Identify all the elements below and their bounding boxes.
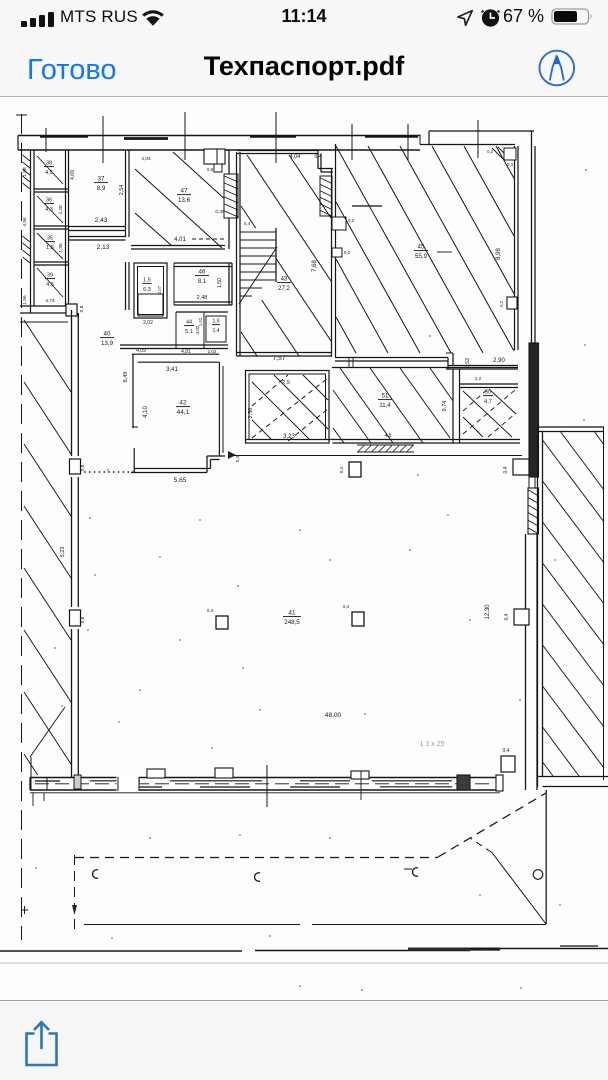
svg-text:4,74: 4,74 [45, 298, 55, 304]
svg-text:1,9: 1,9 [213, 319, 220, 325]
svg-text:4,3: 4,3 [45, 207, 53, 213]
svg-text:12,30: 12,30 [485, 604, 491, 620]
svg-text:37: 37 [98, 176, 105, 183]
svg-text:44: 44 [186, 320, 192, 326]
svg-text:27,2: 27,2 [278, 286, 290, 292]
svg-text:8,9: 8,9 [97, 185, 106, 192]
svg-text:0,2: 0,2 [487, 149, 493, 154]
svg-text:1,50: 1,50 [217, 278, 223, 288]
svg-text:5,23: 5,23 [60, 547, 66, 558]
svg-text:1,02: 1,02 [208, 349, 217, 354]
svg-text:3,41: 3,41 [166, 367, 178, 373]
svg-text:39: 39 [47, 273, 53, 279]
svg-text:0,6: 0,6 [207, 167, 214, 172]
svg-text:1,36: 1,36 [58, 243, 64, 253]
svg-text:8,98: 8,98 [496, 248, 502, 260]
svg-text:38: 38 [46, 161, 52, 167]
svg-text:0,4: 0,4 [503, 466, 509, 473]
svg-text:4,09: 4,09 [136, 348, 146, 354]
svg-text:0,8: 0,8 [80, 616, 86, 623]
svg-text:7,57: 7,57 [273, 355, 286, 362]
svg-text:1,56: 1,56 [22, 295, 28, 305]
svg-text:4,28: 4,28 [58, 205, 64, 215]
svg-text:8,1: 8,1 [198, 279, 207, 285]
svg-text:0,4: 0,4 [343, 604, 350, 609]
svg-text:2,13: 2,13 [97, 244, 110, 251]
svg-text:0,53: 0,53 [465, 358, 471, 368]
svg-text:55,9: 55,9 [415, 253, 428, 260]
svg-text:0,2: 0,2 [344, 250, 351, 255]
svg-text:4,69: 4,69 [70, 170, 76, 180]
svg-text:2,02: 2,02 [143, 320, 153, 326]
svg-text:0,8: 0,8 [80, 464, 86, 471]
svg-text:0,4: 0,4 [339, 466, 344, 473]
svg-text:43: 43 [281, 277, 288, 283]
svg-text:46: 46 [199, 270, 206, 276]
svg-text:1,5: 1,5 [143, 278, 151, 284]
svg-text:1,4: 1,4 [213, 328, 220, 334]
svg-text:9,74: 9,74 [442, 401, 448, 412]
svg-text:44,1: 44,1 [177, 409, 190, 416]
svg-text:4,6: 4,6 [46, 282, 54, 288]
svg-text:5,1: 5,1 [185, 329, 193, 335]
svg-text:42: 42 [179, 400, 187, 407]
svg-text:0,4: 0,4 [503, 748, 510, 754]
svg-text:2,56: 2,56 [248, 408, 254, 419]
svg-text:4,7: 4,7 [484, 399, 492, 405]
svg-text:1,5: 1,5 [46, 245, 54, 251]
svg-text:0,2: 0,2 [348, 218, 355, 223]
svg-text:2,9: 2,9 [282, 380, 290, 386]
svg-text:. .: . . [441, 734, 446, 740]
svg-text:1,58: 1,58 [22, 167, 28, 177]
svg-text:50: 50 [485, 390, 491, 396]
svg-text:51: 51 [382, 394, 389, 400]
svg-text:4,04: 4,04 [141, 156, 151, 162]
svg-text:2,2: 2,2 [475, 376, 482, 381]
svg-text:41: 41 [289, 610, 296, 617]
svg-text:45: 45 [418, 244, 425, 251]
svg-text:0,07: 0,07 [157, 285, 162, 294]
svg-text:11,4: 11,4 [379, 403, 391, 409]
svg-text:4,5: 4,5 [385, 433, 392, 439]
svg-text:2,54: 2,54 [119, 185, 125, 196]
svg-text:248,5: 248,5 [284, 619, 300, 626]
svg-text:35: 35 [47, 236, 53, 242]
svg-text:4,01: 4,01 [174, 237, 186, 243]
svg-text:13,9: 13,9 [101, 340, 114, 347]
svg-text:8,49: 8,49 [123, 372, 129, 383]
svg-text:4,5: 4,5 [45, 170, 53, 176]
svg-text:0,3: 0,3 [507, 162, 513, 167]
svg-text:2,48: 2,48 [197, 295, 208, 301]
svg-text:48,00: 48,00 [325, 712, 342, 719]
svg-text:36: 36 [46, 198, 52, 204]
svg-text:4,10: 4,10 [143, 406, 149, 418]
svg-text:6,3: 6,3 [143, 287, 151, 293]
svg-text:2,90: 2,90 [493, 358, 505, 364]
svg-text:13,6: 13,6 [178, 197, 191, 204]
svg-text:0,35: 0,35 [215, 209, 225, 215]
svg-text:4,56: 4,56 [22, 217, 28, 227]
svg-text:0,4: 0,4 [235, 455, 240, 462]
svg-text:1 3 х 25: 1 3 х 25 [420, 741, 445, 748]
svg-text:0,2: 0,2 [499, 300, 504, 306]
svg-text:5,65: 5,65 [174, 477, 187, 484]
svg-text:0,4: 0,4 [504, 613, 510, 620]
svg-text:0,4: 0,4 [244, 221, 251, 226]
svg-text:1,02: 1,02 [198, 317, 203, 326]
svg-text:2,43: 2,43 [95, 217, 108, 224]
svg-text:47: 47 [181, 188, 188, 195]
svg-text:7,68: 7,68 [312, 260, 318, 272]
svg-text:0,4: 0,4 [207, 608, 214, 613]
svg-text:0,8: 0,8 [79, 305, 85, 312]
svg-text:40: 40 [104, 331, 111, 338]
